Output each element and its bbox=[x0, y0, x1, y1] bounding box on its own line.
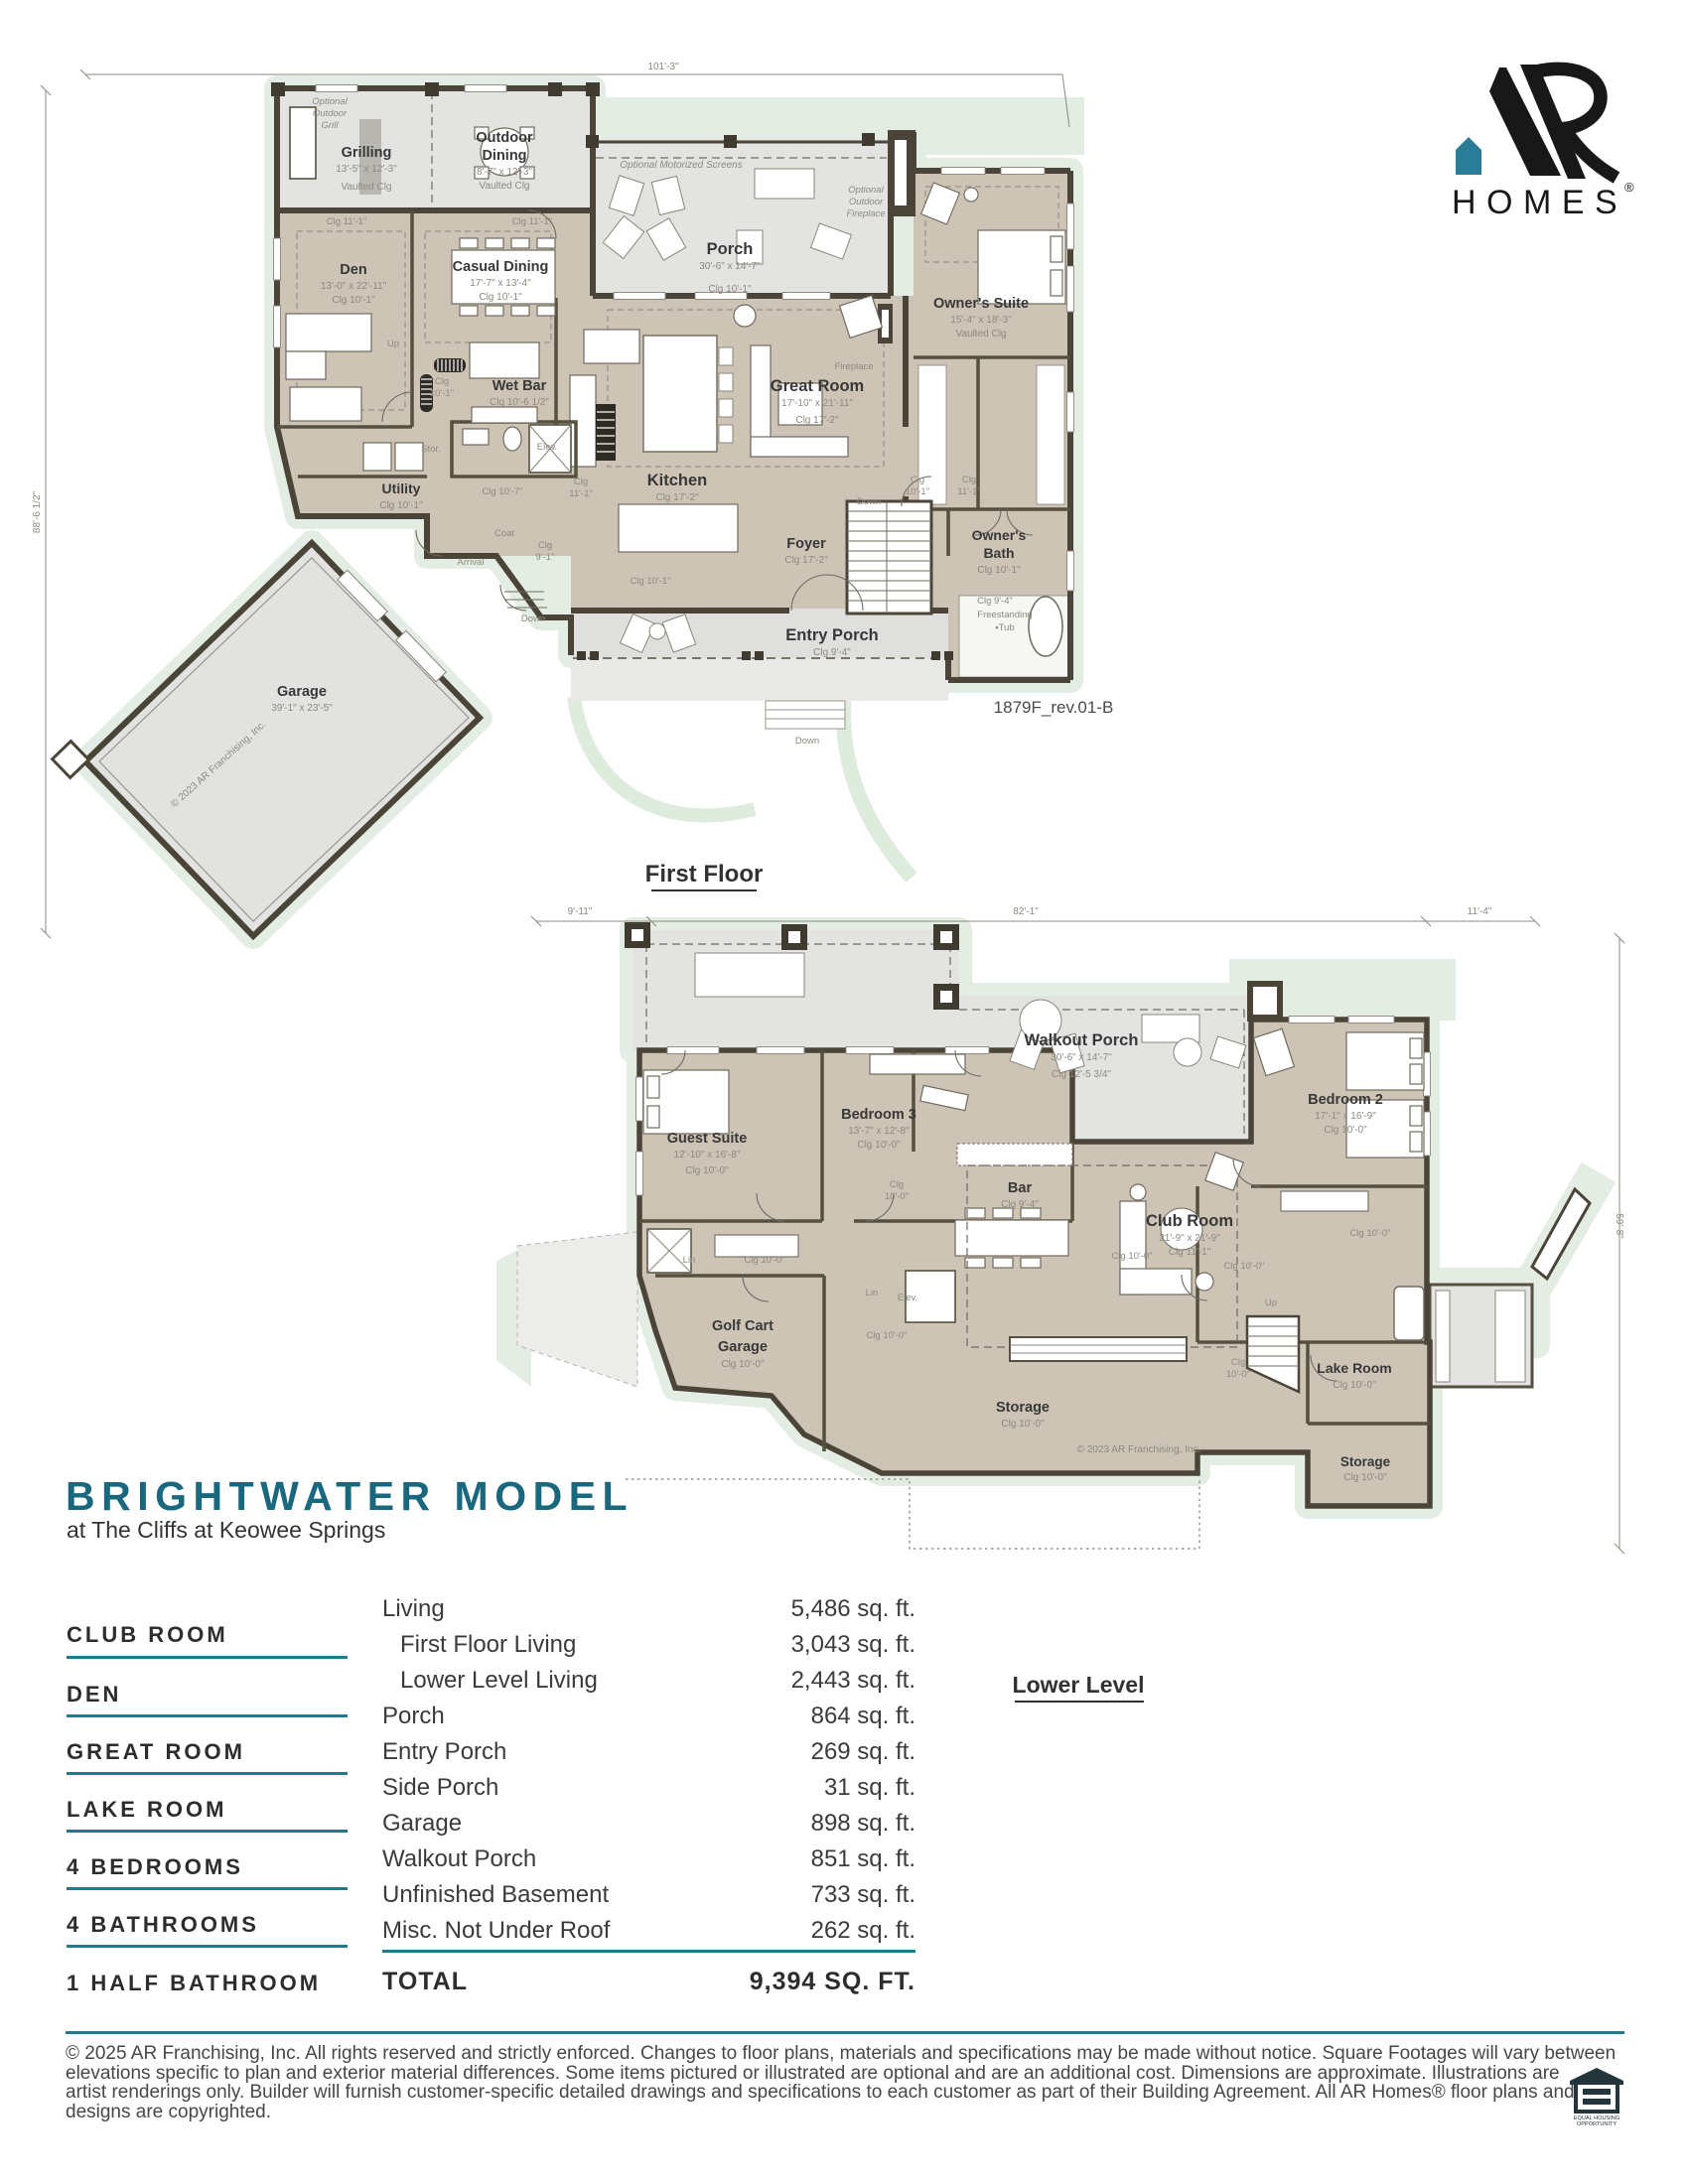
svg-text:Bath: Bath bbox=[983, 545, 1014, 561]
svg-text:Clg 10'-0": Clg 10'-0" bbox=[857, 1140, 901, 1151]
svg-text:HOMES: HOMES bbox=[1452, 184, 1627, 221]
svg-text:Bar: Bar bbox=[1008, 1180, 1033, 1196]
svg-text:Guest Suite: Guest Suite bbox=[667, 1131, 748, 1147]
svg-text:First Floor: First Floor bbox=[645, 861, 764, 887]
svg-text:10'-0": 10'-0" bbox=[1226, 1369, 1250, 1380]
svg-text:Down: Down bbox=[857, 496, 881, 507]
svg-text:13'-7" x 12'-8": 13'-7" x 12'-8" bbox=[848, 1126, 910, 1137]
svg-text:82'-1": 82'-1" bbox=[1013, 906, 1039, 917]
svg-text:Freestanding: Freestanding bbox=[977, 610, 1032, 620]
svg-text:Fireplace: Fireplace bbox=[846, 208, 885, 219]
svg-text:Clg 10'-0": Clg 10'-0" bbox=[685, 1165, 729, 1176]
svg-text:Fireplace: Fireplace bbox=[834, 361, 873, 372]
svg-text:Clg 10'-0": Clg 10'-0" bbox=[1324, 1125, 1367, 1136]
svg-text:Foyer: Foyer bbox=[786, 536, 826, 552]
svg-text:11'-1": 11'-1" bbox=[569, 488, 593, 499]
svg-text:17'-10" x 21'-11": 17'-10" x 21'-11" bbox=[781, 398, 853, 409]
svg-text:Outdoor: Outdoor bbox=[849, 197, 884, 207]
svg-text:Down: Down bbox=[521, 614, 545, 624]
svg-text:Clg 9'-4": Clg 9'-4" bbox=[813, 647, 851, 658]
svg-text:Clg: Clg bbox=[962, 475, 976, 485]
svg-text:Casual Dining: Casual Dining bbox=[453, 259, 549, 275]
svg-text:®: ® bbox=[1624, 180, 1634, 195]
svg-text:13'-5" x 12'-3": 13'-5" x 12'-3" bbox=[336, 164, 397, 175]
svg-text:Clg 10'-0": Clg 10'-0" bbox=[1349, 1228, 1390, 1239]
svg-text:Elev.: Elev. bbox=[898, 1293, 917, 1303]
svg-text:Dining: Dining bbox=[482, 148, 526, 164]
svg-text:13'-0" x 22'-11": 13'-0" x 22'-11" bbox=[321, 281, 387, 292]
svg-text:Porch: Porch bbox=[707, 240, 754, 258]
svg-text:11'-4": 11'-4" bbox=[1468, 906, 1492, 917]
svg-text:Clg 12'-5 3/4": Clg 12'-5 3/4" bbox=[1052, 1069, 1111, 1080]
svg-text:Entry Porch: Entry Porch bbox=[785, 626, 879, 644]
svg-text:1879F_rev.01-B: 1879F_rev.01-B bbox=[994, 698, 1114, 717]
svg-text:Great Room: Great Room bbox=[771, 377, 864, 395]
svg-text:Clg 17'-2": Clg 17'-2" bbox=[784, 555, 828, 566]
svg-text:Clg 17'-2": Clg 17'-2" bbox=[795, 415, 839, 426]
svg-text:Bedroom 3: Bedroom 3 bbox=[841, 1107, 916, 1123]
svg-text:Clg 10'-1": Clg 10'-1" bbox=[479, 292, 522, 303]
svg-text:Coat: Coat bbox=[494, 528, 514, 539]
svg-text:Lin: Lin bbox=[683, 1255, 696, 1266]
svg-text:9'-11": 9'-11" bbox=[568, 906, 593, 917]
svg-text:Up: Up bbox=[1265, 1297, 1277, 1308]
svg-text:Owner's Suite: Owner's Suite bbox=[933, 296, 1029, 312]
svg-text:Grilling: Grilling bbox=[342, 145, 392, 161]
svg-text:Clg: Clg bbox=[890, 1179, 904, 1190]
svg-text:Clg 9'-4": Clg 9'-4" bbox=[1001, 1199, 1039, 1210]
svg-text:15'-4" x 18'-3": 15'-4" x 18'-3" bbox=[950, 315, 1012, 326]
svg-text:Clg 10'-1": Clg 10'-1" bbox=[332, 295, 375, 306]
svg-text:Clg 17'-2": Clg 17'-2" bbox=[655, 492, 699, 503]
svg-text:Up: Up bbox=[387, 339, 399, 349]
svg-text:Clg 10'-1": Clg 10'-1" bbox=[977, 565, 1021, 576]
svg-text:Storage: Storage bbox=[1340, 1454, 1391, 1469]
svg-text:10'-1": 10'-1" bbox=[906, 486, 929, 497]
svg-text:Kitchen: Kitchen bbox=[647, 472, 708, 489]
svg-text:Garage: Garage bbox=[718, 1339, 768, 1355]
svg-text:12'-10" x 16'-8": 12'-10" x 16'-8" bbox=[673, 1150, 741, 1160]
svg-text:9'-1": 9'-1" bbox=[536, 552, 555, 563]
svg-text:Storage: Storage bbox=[996, 1400, 1050, 1416]
svg-text:Optional Motorized Screens: Optional Motorized Screens bbox=[620, 160, 742, 171]
svg-text:Clg 10'-0": Clg 10'-0" bbox=[721, 1359, 765, 1370]
svg-text:Clg 10'-0": Clg 10'-0" bbox=[1223, 1261, 1264, 1272]
svg-text:Walkout Porch: Walkout Porch bbox=[1025, 1031, 1139, 1049]
svg-text:Clg 10'-6 1/2": Clg 10'-6 1/2" bbox=[490, 397, 549, 408]
svg-text:Garage: Garage bbox=[277, 684, 327, 700]
svg-text:Golf Cart: Golf Cart bbox=[712, 1318, 774, 1334]
svg-text:Clg 10'-1": Clg 10'-1" bbox=[379, 500, 423, 511]
svg-text:Utility: Utility bbox=[382, 480, 421, 496]
svg-text:Clg: Clg bbox=[574, 477, 588, 487]
svg-text:Clg 10'-1": Clg 10'-1" bbox=[708, 284, 752, 295]
svg-text:Clg: Clg bbox=[1231, 1357, 1245, 1368]
svg-text:Clg: Clg bbox=[538, 540, 552, 551]
svg-text:Clg 10'-0": Clg 10'-0" bbox=[1111, 1251, 1152, 1262]
svg-text:Vaulted Clg: Vaulted Clg bbox=[342, 182, 392, 193]
svg-text:Clg 11'-1": Clg 11'-1" bbox=[327, 216, 366, 227]
svg-text:Clg 10'-1": Clg 10'-1" bbox=[630, 576, 670, 587]
svg-text:8'-7" x 12'-3": 8'-7" x 12'-3" bbox=[477, 167, 532, 178]
svg-text:Elev.: Elev. bbox=[537, 442, 557, 453]
svg-text:Clg 11'-1": Clg 11'-1" bbox=[1169, 1247, 1211, 1258]
svg-text:21'-9" x 21'-9": 21'-9" x 21'-9" bbox=[1159, 1233, 1220, 1244]
svg-text:Clg 10'-0": Clg 10'-0" bbox=[1001, 1419, 1045, 1430]
svg-text:Club Room: Club Room bbox=[1146, 1212, 1233, 1230]
svg-text:Clg 10'-0": Clg 10'-0" bbox=[1333, 1380, 1376, 1391]
svg-text:88'-6 1/2": 88'-6 1/2" bbox=[32, 490, 43, 533]
svg-text:30'-6" x 14'-7": 30'-6" x 14'-7" bbox=[1051, 1052, 1112, 1063]
svg-text:OPPORTUNITY: OPPORTUNITY bbox=[1577, 2121, 1618, 2127]
svg-text:17'-1" x 16'-9": 17'-1" x 16'-9" bbox=[1315, 1111, 1376, 1122]
svg-text:Bedroom 2: Bedroom 2 bbox=[1308, 1092, 1383, 1108]
svg-text:30'-6" x 14'-7": 30'-6" x 14'-7" bbox=[699, 261, 761, 272]
svg-text:Lower Level: Lower Level bbox=[1013, 1672, 1145, 1698]
svg-text:© 2023 AR Franchising, Inc.: © 2023 AR Franchising, Inc. bbox=[1077, 1444, 1201, 1455]
svg-text:Clg 11'-1": Clg 11'-1" bbox=[512, 216, 552, 227]
svg-text:59'-8": 59'-8" bbox=[1614, 1213, 1624, 1239]
svg-text:Optional: Optional bbox=[312, 96, 348, 107]
svg-text:Outdoor: Outdoor bbox=[476, 130, 533, 146]
svg-text:10'-1": 10'-1" bbox=[430, 388, 454, 399]
svg-text:Vaulted Clg: Vaulted Clg bbox=[956, 329, 1007, 340]
svg-text:Clg 10'-7": Clg 10'-7" bbox=[482, 486, 522, 497]
svg-text:39'-1" x 23'-5": 39'-1" x 23'-5" bbox=[271, 703, 333, 714]
svg-text:▪Tub: ▪Tub bbox=[995, 622, 1014, 633]
svg-text:Lin: Lin bbox=[866, 1288, 879, 1298]
svg-text:Vaulted Clg: Vaulted Clg bbox=[480, 181, 530, 192]
svg-text:Wet Bar: Wet Bar bbox=[492, 378, 547, 394]
svg-text:Optional: Optional bbox=[848, 185, 884, 196]
svg-text:Lake Room: Lake Room bbox=[1317, 1360, 1391, 1376]
svg-text:Den: Den bbox=[340, 262, 366, 278]
svg-text:101'-3": 101'-3" bbox=[647, 62, 678, 72]
svg-text:Stor.: Stor. bbox=[421, 444, 441, 455]
svg-text:Owner's: Owner's bbox=[972, 527, 1027, 543]
svg-text:Clg 10'-0": Clg 10'-0" bbox=[866, 1330, 907, 1341]
svg-text:11'-1": 11'-1" bbox=[957, 486, 981, 497]
svg-text:Outdoor: Outdoor bbox=[313, 108, 348, 119]
svg-text:Clg 10'-0": Clg 10'-0" bbox=[1343, 1472, 1387, 1483]
svg-text:Down: Down bbox=[795, 736, 819, 747]
svg-text:17'-7" x 13'-4": 17'-7" x 13'-4" bbox=[470, 278, 531, 289]
svg-text:Clg 9'-4": Clg 9'-4" bbox=[977, 596, 1013, 607]
svg-text:Clg 10'-0": Clg 10'-0" bbox=[744, 1255, 784, 1266]
svg-text:Clg: Clg bbox=[911, 475, 924, 485]
svg-text:Clg: Clg bbox=[435, 376, 449, 387]
svg-text:Arrival: Arrival bbox=[458, 557, 485, 568]
svg-text:Grill: Grill bbox=[322, 120, 340, 131]
svg-text:10'-0": 10'-0" bbox=[885, 1191, 909, 1202]
